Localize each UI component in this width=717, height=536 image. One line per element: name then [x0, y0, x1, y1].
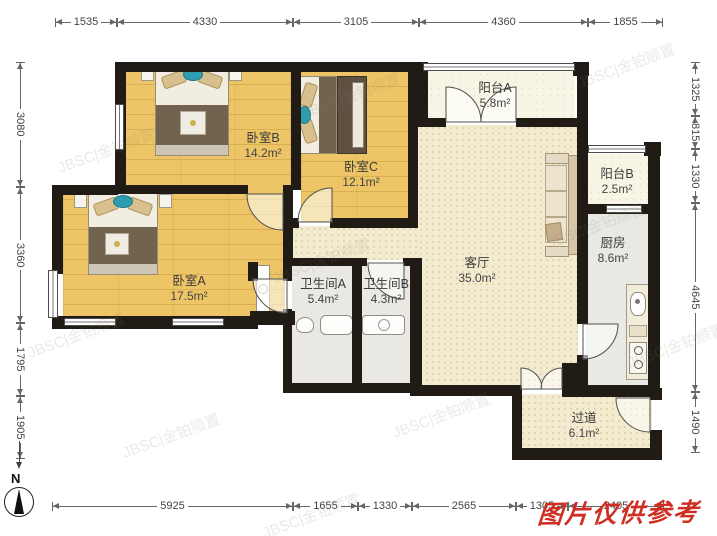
room-label-hallway: 过道6.1m²	[541, 411, 627, 441]
dimension-right: 1490	[689, 392, 701, 453]
north-arrowhead-icon	[16, 462, 22, 469]
floor-plan: 卧室B14.2m² 卧室C12.1m² 阳台A5.8m² 阳台B2.5m² 厨房…	[0, 0, 717, 536]
kitchen-counter	[626, 284, 650, 380]
bed-double	[88, 193, 158, 275]
bed-double	[155, 66, 229, 156]
dimension-bottom: 5925	[52, 500, 293, 512]
wall-segment	[250, 311, 295, 325]
dimension-bottom: 2565	[412, 500, 516, 512]
room-label-bedroom-c: 卧室C12.1m²	[318, 160, 404, 190]
wall-segment	[577, 212, 588, 324]
dimension-top: 4360	[419, 16, 588, 28]
dimension-top: 3105	[293, 16, 419, 28]
wall-segment	[410, 385, 522, 396]
dimension-left: 1905	[14, 396, 26, 459]
wall-segment	[650, 388, 662, 400]
window	[606, 205, 642, 213]
watermark-tiled: JBSC|金铂顺置	[259, 488, 362, 536]
window	[588, 145, 646, 153]
compass-needle-icon	[14, 489, 24, 514]
dimension-top: 1855	[588, 16, 663, 28]
window	[115, 104, 124, 150]
dimension-left: 3360	[14, 187, 26, 323]
watermark-reference-note: 图片仅供参考	[536, 493, 701, 532]
wall-segment	[573, 62, 589, 76]
north-indicator-line	[19, 441, 20, 463]
room-label-bath-b: 卫生间B4.3m²	[343, 277, 429, 307]
room-label-balcony-b: 阳台B2.5m²	[574, 167, 660, 197]
window	[423, 63, 575, 71]
room-label-bedroom-a: 卧室A17.5m²	[146, 274, 232, 304]
wall-segment	[117, 185, 248, 194]
wall-segment	[644, 142, 661, 156]
nightstand	[159, 194, 172, 208]
wardrobe	[337, 76, 367, 154]
wall-segment	[283, 383, 415, 393]
room-label-bedroom-b: 卧室B14.2m²	[220, 131, 306, 161]
dimension-left: 1795	[14, 323, 26, 396]
window	[64, 318, 116, 326]
dimension-top: 4330	[117, 16, 293, 28]
wall-segment	[403, 258, 422, 266]
bathtub	[320, 315, 353, 335]
room-label-living: 客厅35.0m²	[434, 256, 520, 286]
room-label-kitchen: 厨房8.6m²	[570, 236, 656, 266]
wall-segment	[293, 218, 299, 228]
dimension-right: 815	[689, 116, 701, 149]
wall-segment	[52, 185, 63, 274]
north-label: N	[11, 471, 20, 486]
bath-vanity	[362, 315, 405, 335]
dimension-right: 4645	[689, 203, 701, 392]
floor-corridor	[293, 226, 420, 260]
dimension-bottom: 1330	[358, 500, 412, 512]
wall-segment	[283, 185, 293, 264]
wall-segment	[283, 258, 367, 266]
dimension-left: 3080	[14, 62, 26, 187]
window	[172, 318, 224, 326]
wall-segment	[416, 118, 446, 127]
dimension-top: 1535	[55, 16, 117, 28]
wall-segment	[248, 262, 258, 281]
window	[48, 270, 58, 318]
dimension-right: 1325	[689, 62, 701, 116]
vanity-cabinet	[256, 265, 270, 313]
room-label-balcony-a: 阳台A5.8m²	[452, 81, 538, 111]
wall-segment	[516, 118, 577, 127]
wall-segment	[578, 385, 660, 397]
watermark-tiled: JBSC|金铂顺置	[119, 408, 222, 463]
wall-segment	[330, 218, 418, 228]
watermark-tiled: JBSC|金铂顺置	[389, 388, 492, 443]
dimension-bottom: 1655	[293, 500, 358, 512]
wall-segment	[291, 62, 301, 190]
wall-segment	[408, 62, 418, 222]
nightstand	[74, 194, 87, 208]
toilet	[296, 317, 314, 333]
dimension-right: 1330	[689, 149, 701, 203]
wall-segment	[117, 62, 416, 72]
wall-segment	[512, 394, 522, 452]
watermark-tiled: JBSC|金铂顺置	[574, 38, 677, 93]
wall-segment	[512, 448, 662, 460]
